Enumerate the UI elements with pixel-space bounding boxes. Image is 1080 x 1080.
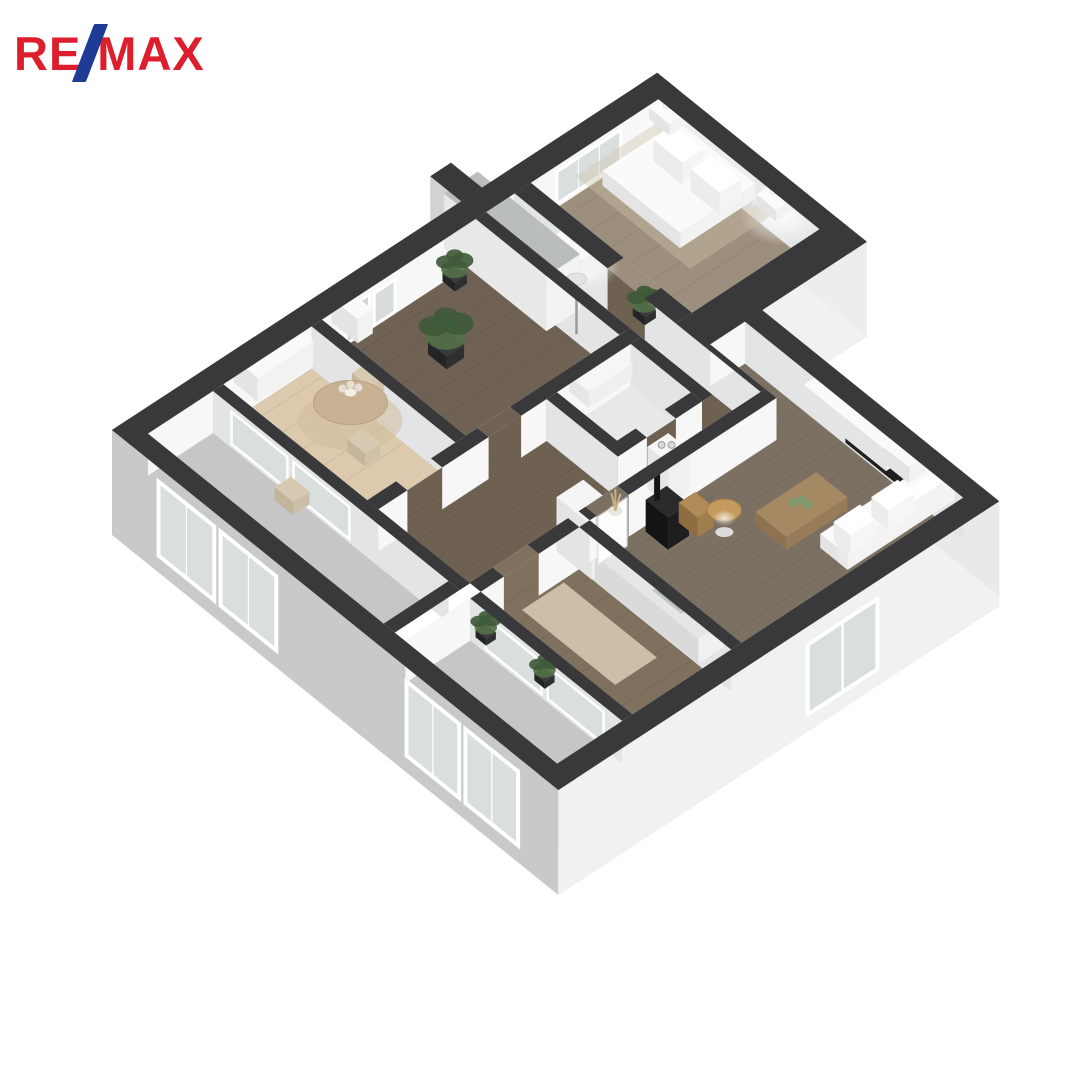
floorplan-page: { "logo": { "part1": "RE", "slash": "/",… bbox=[0, 0, 1080, 1080]
floorplan-3d-render bbox=[0, 0, 1080, 1080]
